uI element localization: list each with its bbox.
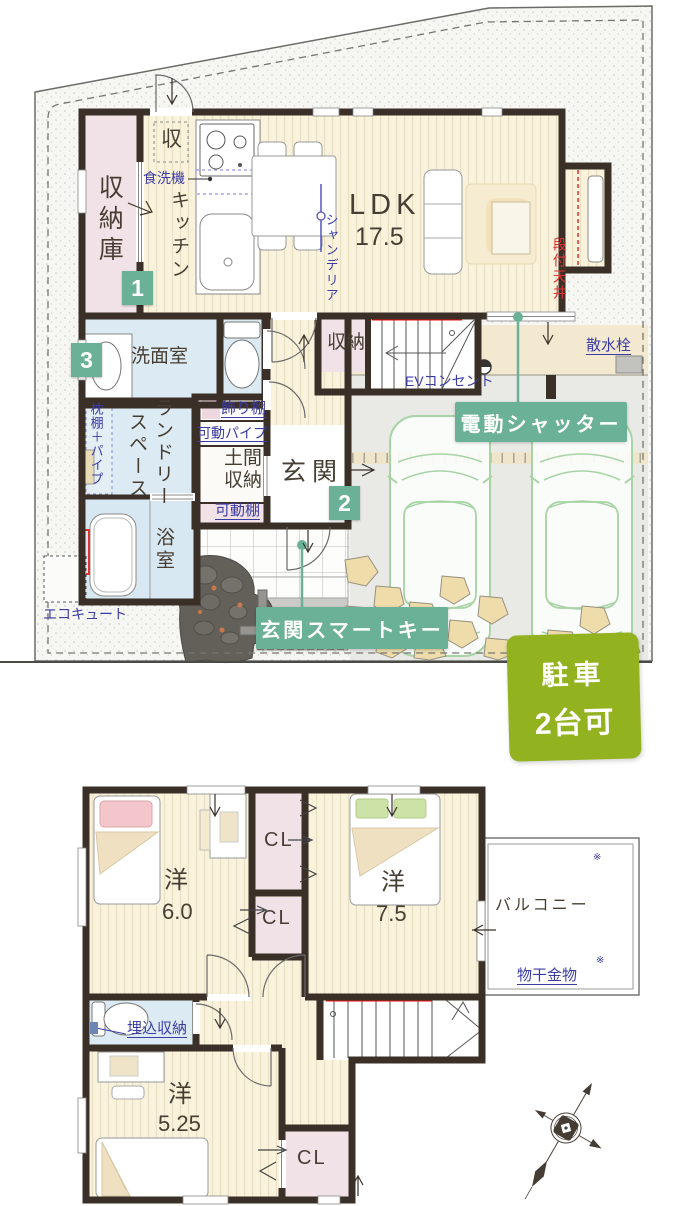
movable-pipe-label: 可動パイプ [197, 426, 267, 442]
kitchen-label: キッチン [168, 190, 188, 282]
compass-icon [494, 1065, 628, 1206]
balcony-label: バルコニー [495, 898, 590, 915]
ldk-label: LDK [349, 190, 420, 220]
ev-outlet-label: EVコンセント [405, 374, 494, 389]
smart-key-callout: 玄関スマートキー [256, 607, 448, 649]
ref-mark: ※ [596, 956, 604, 967]
bed-icon [94, 796, 160, 904]
ecocute-label: エコキュート [43, 607, 127, 622]
sprinkler-tap-icon [616, 356, 642, 373]
west-room1-size: 6.0 [162, 900, 193, 923]
closet-a-label: CL [264, 830, 294, 851]
storage-room-label: 収納庫 [96, 174, 122, 267]
floor-plan-canvas: 収納庫 収 食洗機 キッチン LDK 17.5 シャンデリア 段付天井 収納 洗… [0, 0, 690, 1206]
bathroom-label: 浴室 [153, 527, 173, 573]
ldk-size-label: 17.5 [355, 224, 404, 250]
laundry-label-1: ランドリー [152, 398, 172, 508]
closet-c-label: CL [297, 1148, 327, 1169]
west-room2-size: 7.5 [376, 902, 407, 925]
small-storage-label: 収 [161, 129, 182, 151]
entrance-label: 玄関 [281, 459, 343, 485]
parking-line-2: 2台可 [534, 696, 615, 742]
west-room3-size: 5.25 [158, 1112, 201, 1135]
stair-storage-label: 収納 [327, 333, 365, 353]
hanging-hardware-label: 物干金物 [517, 968, 577, 985]
display-shelf-label: 飾り棚 [221, 401, 266, 418]
chandelier-label: シャンデリア [324, 213, 338, 303]
pillow-shelf-label: 枕棚＋パイプ [89, 402, 103, 486]
point-badge-3: 3 [71, 343, 102, 377]
rug-and-table-icon [466, 184, 536, 264]
point-badge-1: 1 [122, 271, 153, 305]
sofa-icon [424, 170, 462, 274]
ref-mark: ※ [593, 853, 601, 864]
west-room1-label: 洋 [164, 868, 188, 893]
west-room3-label: 洋 [168, 1082, 192, 1107]
parking-line-1: 駐車 [541, 652, 606, 693]
washroom-label: 洗面室 [131, 347, 188, 367]
dishwasher-label: 食洗機 [143, 171, 185, 186]
toilet-icon [224, 322, 260, 388]
movable-shelf-label: 可動棚 [215, 503, 260, 520]
point-badge-2: 2 [329, 486, 360, 520]
parking-badge: 駐車 2台可 [506, 632, 641, 761]
recessed-storage-label: 埋込収納 [127, 1021, 187, 1038]
doma-storage-label-1: 土間 [224, 449, 262, 469]
west-room2-label: 洋 [381, 870, 405, 895]
doma-storage-label-2: 収納 [224, 471, 262, 491]
electric-shutter-callout: 電動シャッター [455, 402, 627, 442]
laundry-label-2: スペース [126, 412, 146, 500]
closet-b-label: CL [262, 908, 292, 929]
bed-icon [96, 1138, 208, 1198]
stepped-ceiling-label: 段付天井 [552, 237, 567, 301]
sprinkler-label: 散水栓 [586, 338, 631, 355]
